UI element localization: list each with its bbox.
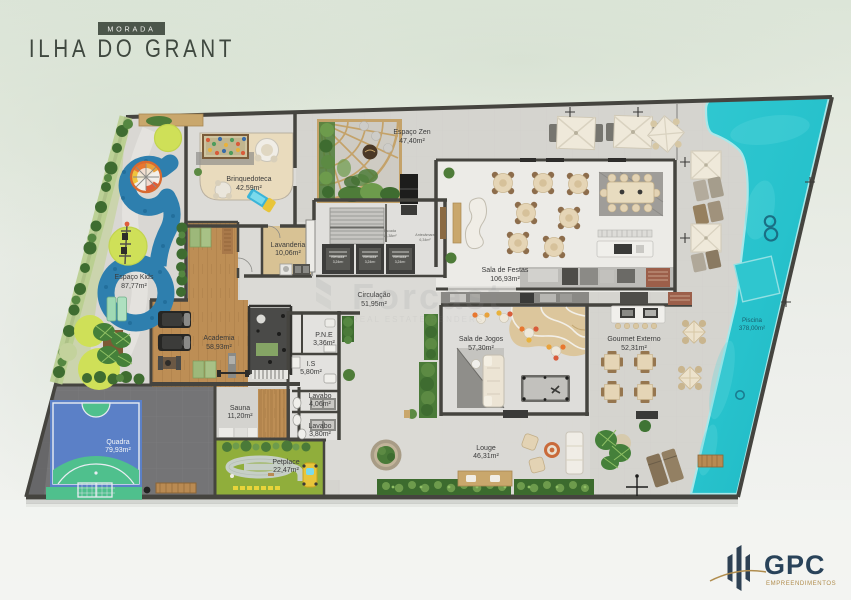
svg-text:Espaço Kids: Espaço Kids [115,274,154,281]
svg-text:Sauna: Sauna [230,405,250,412]
svg-text:Academia: Academia [203,335,234,342]
svg-text:378,00m²: 378,00m² [739,325,765,332]
svg-text:6,34m²: 6,34m² [419,238,431,242]
svg-text:Lavabo: Lavabo [309,423,332,430]
svg-text:3,80m²: 3,80m² [309,431,331,438]
svg-text:22,47m²: 22,47m² [273,467,299,474]
svg-text:47,40m²: 47,40m² [399,138,425,145]
svg-text:87,77m²: 87,77m² [121,283,147,290]
svg-text:3,24m²: 3,24m² [333,260,344,264]
svg-text:4,06m²: 4,06m² [309,401,331,408]
svg-text:EMPREENDIMENTOS: EMPREENDIMENTOS [766,581,836,587]
svg-text:Forcast: Forcast [352,276,503,317]
svg-text:Petplace: Petplace [272,459,299,466]
svg-text:Antecâmara: Antecâmara [415,233,434,237]
svg-text:Elevador: Elevador [331,255,345,259]
svg-text:Elevador: Elevador [363,255,377,259]
svg-text:GPC: GPC [764,550,826,580]
svg-text:46,31m²: 46,31m² [473,453,499,460]
svg-text:Gourmet Externo: Gourmet Externo [607,336,660,343]
svg-text:Louge: Louge [476,445,496,452]
svg-text:Lavanderia: Lavanderia [271,242,306,249]
svg-text:13,38m²: 13,38m² [383,234,397,238]
svg-text:P.N.E: P.N.E [315,332,333,339]
svg-text:Quadra: Quadra [106,439,129,446]
svg-text:Espaço Zen: Espaço Zen [393,129,430,136]
svg-text:42,59m²: 42,59m² [236,185,262,192]
svg-text:79,93m²: 79,93m² [105,447,131,454]
svg-text:58,93m²: 58,93m² [206,344,232,351]
svg-text:Sala de Jogos: Sala de Jogos [459,336,504,343]
svg-text:Sala de Festas: Sala de Festas [482,267,529,274]
svg-text:Lavabo: Lavabo [309,393,332,400]
svg-text:5,80m²: 5,80m² [300,369,322,376]
svg-text:52,31m²: 52,31m² [621,345,647,352]
svg-text:I.S: I.S [307,361,316,368]
svg-text:3,36m²: 3,36m² [313,340,335,347]
svg-text:10,06m²: 10,06m² [275,250,301,257]
svg-text:ILHA DO GRANT: ILHA DO GRANT [29,34,235,62]
svg-text:3,24m²: 3,24m² [365,260,376,264]
svg-text:11,20m²: 11,20m² [227,413,253,420]
svg-text:Brinquedoteca: Brinquedoteca [226,176,271,183]
svg-text:57,30m²: 57,30m² [468,345,494,352]
svg-text:Escada: Escada [384,229,396,233]
svg-text:Piscina: Piscina [742,317,763,324]
svg-text:Elevador: Elevador [393,255,407,259]
svg-text:MORADA: MORADA [107,25,155,34]
svg-text:3,24m²: 3,24m² [395,260,406,264]
svg-text:REAL ESTATE RENDERS: REAL ESTATE RENDERS [352,315,484,324]
